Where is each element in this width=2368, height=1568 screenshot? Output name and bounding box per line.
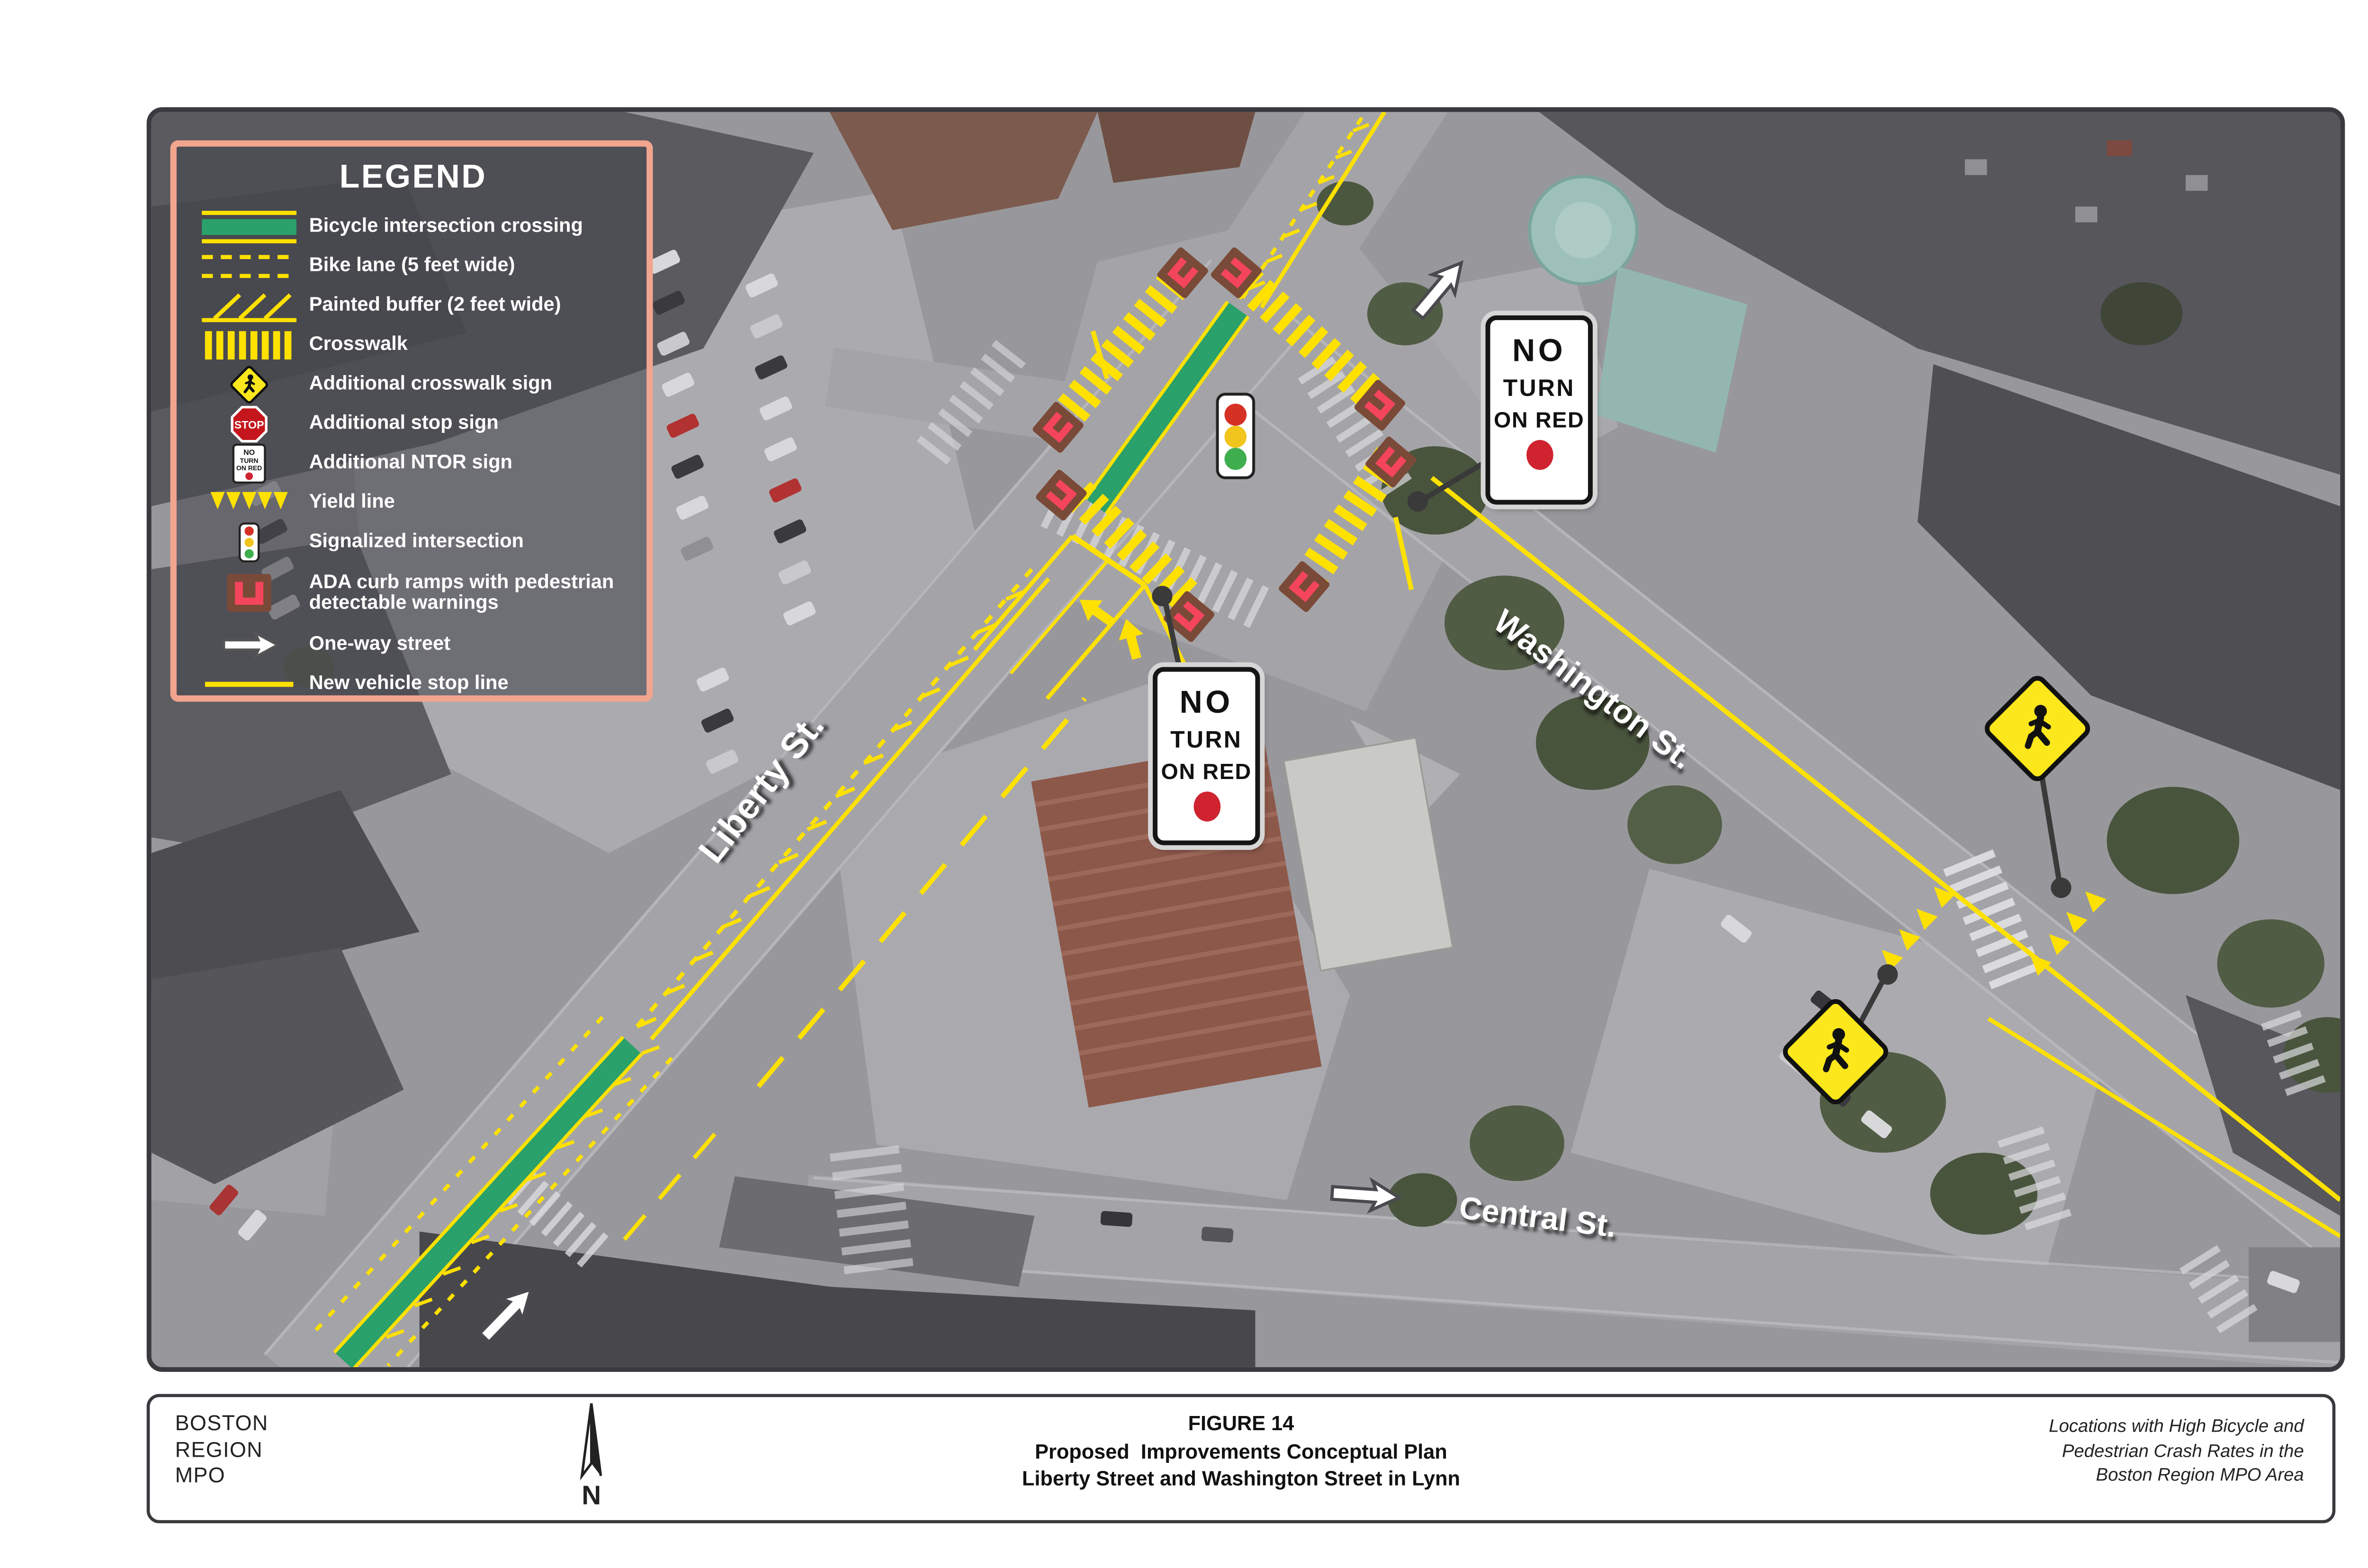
ntor-line2: TURN	[1157, 727, 1255, 754]
yield-line-swatch-icon	[189, 482, 309, 523]
svg-text:ON RED: ON RED	[236, 464, 262, 471]
svg-text:NO: NO	[243, 448, 255, 456]
footer-panel: BOSTON REGION MPO N FIGURE 14 Proposed I…	[147, 1394, 2336, 1523]
ntor-line3: ON RED	[1157, 759, 1255, 784]
legend-title: LEGEND	[189, 159, 637, 197]
ntor-line2: TURN	[1490, 375, 1588, 402]
ada-ramp-icon	[189, 568, 309, 618]
one-way-arrow-icon	[189, 624, 309, 665]
painted-buffer-swatch-icon	[189, 285, 309, 326]
bicycle-crossing-swatch-icon	[189, 206, 309, 247]
legend-item: NOTURNON RED Additional NTOR sign	[189, 443, 637, 483]
legend-item: Additional crosswalk sign	[189, 364, 637, 403]
bike-lane-swatch-icon	[189, 245, 309, 287]
legend-item: New vehicle stop line	[189, 664, 637, 703]
no-turn-on-red-sign: NO TURN ON RED	[1486, 315, 1593, 505]
svg-text:TURN: TURN	[240, 456, 259, 464]
figure-title: FIGURE 14 Proposed Improvements Conceptu…	[150, 1410, 2332, 1493]
legend-item: STOP Additional stop sign	[189, 403, 637, 443]
stop-sign-icon: STOP	[189, 403, 309, 444]
ntor-line1: NO	[1157, 686, 1255, 722]
legend-item: Bike lane (5 feet wide)	[189, 246, 637, 285]
legend-item: Painted buffer (2 feet wide)	[189, 286, 637, 325]
traffic-signal-icon	[189, 521, 309, 562]
legend-item: Signalized intersection	[189, 522, 637, 561]
crosswalk-swatch-icon	[189, 324, 309, 365]
legend-item: One-way street	[189, 625, 637, 664]
red-ball-icon	[1193, 792, 1220, 822]
traffic-signal-icon	[1218, 394, 1254, 477]
red-ball-icon	[1525, 440, 1552, 470]
ntor-line1: NO	[1490, 334, 1588, 371]
figure-number: FIGURE 14	[150, 1410, 2332, 1437]
study-note: Locations with High Bicycle and Pedestri…	[2049, 1416, 2304, 1489]
no-turn-on-red-sign: NO TURN ON RED	[1153, 667, 1260, 845]
svg-text:STOP: STOP	[234, 418, 264, 430]
legend-item: Crosswalk	[189, 325, 637, 364]
legend-item: Yield line	[189, 483, 637, 522]
figure-subtitle: Proposed Improvements Conceptual Plan	[150, 1437, 2332, 1465]
ntor-sign-icon: NOTURNON RED	[189, 442, 309, 484]
figure-page: NO TURN ON RED NO TURN ON RED Liberty St…	[0, 0, 2368, 1568]
map-panel: NO TURN ON RED NO TURN ON RED Liberty St…	[147, 107, 2345, 1371]
legend-panel: LEGEND Bicycle intersection crossing Bik…	[170, 140, 653, 701]
stop-line-swatch-icon	[189, 663, 309, 704]
figure-location: Liberty Street and Washington Street in …	[150, 1465, 2332, 1492]
crosswalk-sign-icon	[189, 363, 309, 404]
legend-item: ADA curb ramps with pedestrian detectabl…	[189, 561, 637, 624]
ntor-line3: ON RED	[1490, 407, 1588, 432]
legend-item: Bicycle intersection crossing	[189, 206, 637, 246]
